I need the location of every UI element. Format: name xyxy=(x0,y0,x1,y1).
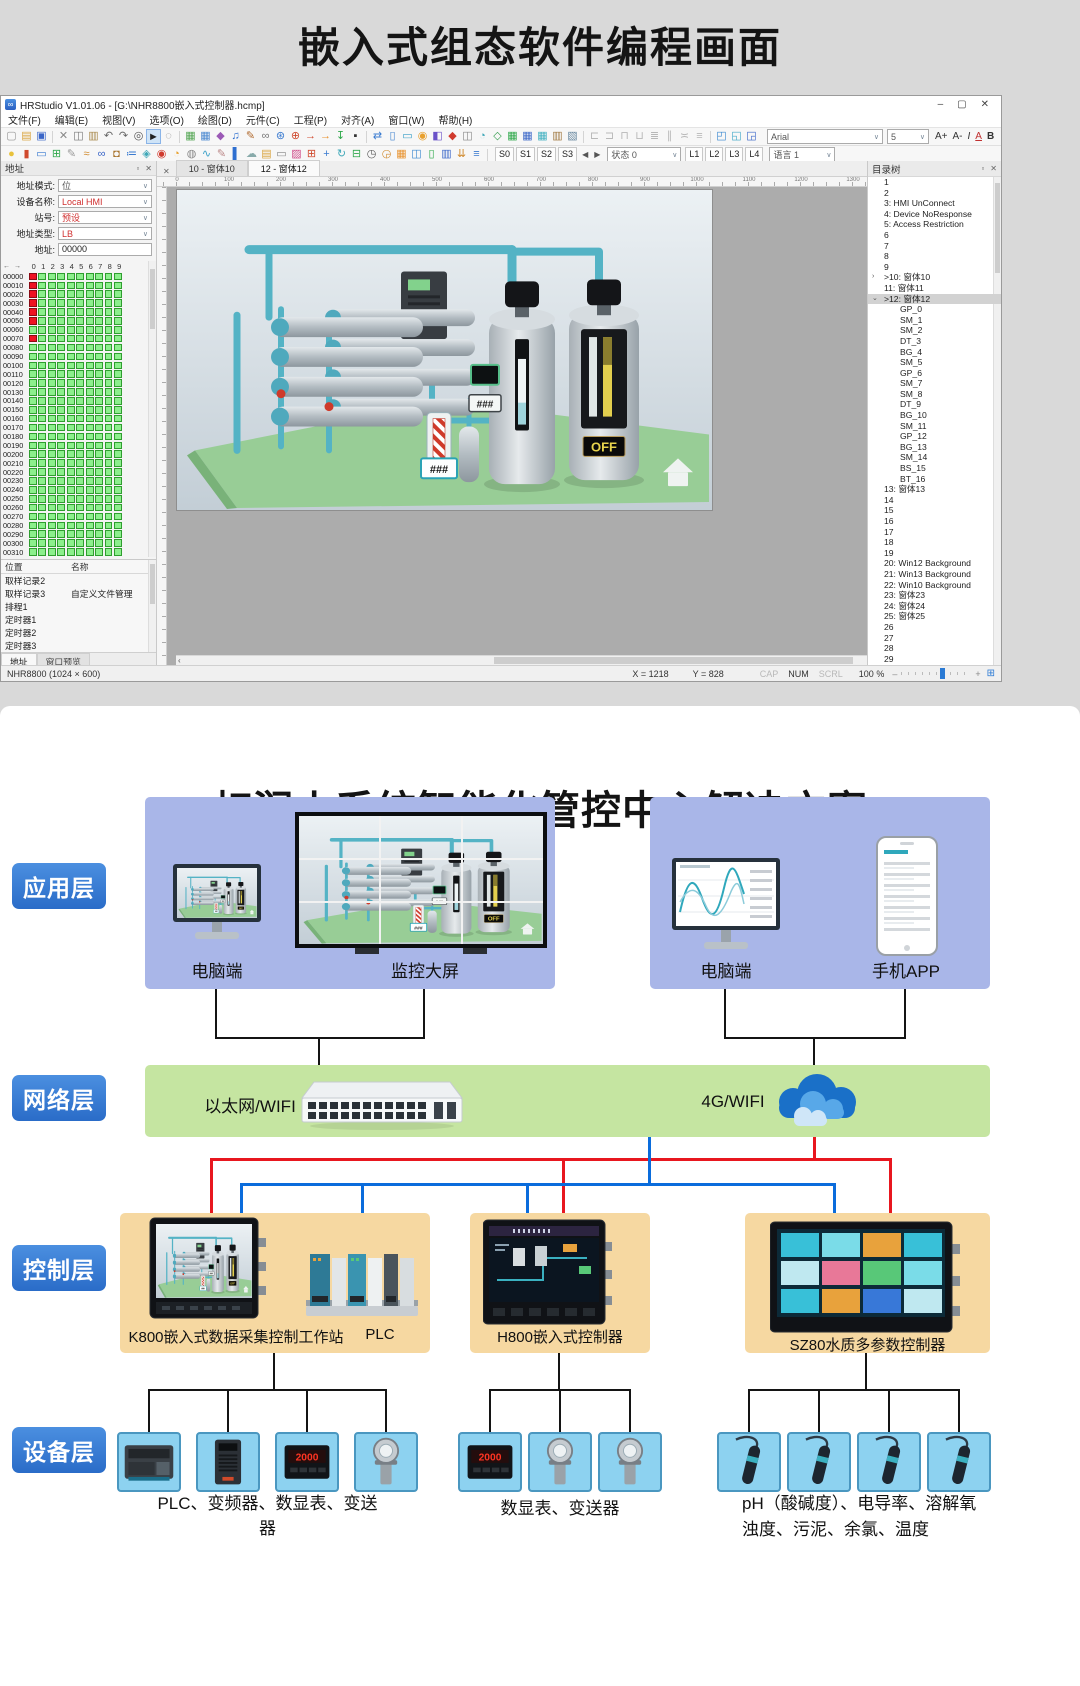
bit-cell[interactable] xyxy=(105,450,113,458)
bit-cell[interactable] xyxy=(95,370,103,378)
dl-icon[interactable]: ↧ xyxy=(333,129,348,144)
bit-cell[interactable] xyxy=(105,495,113,503)
bit-cell[interactable] xyxy=(67,353,75,361)
tree-item[interactable]: BG_4 xyxy=(868,347,1001,358)
bit-cell[interactable] xyxy=(29,513,37,521)
bit-cell[interactable] xyxy=(95,282,103,290)
state-button-S2[interactable]: S2 xyxy=(537,147,556,162)
bit-cell[interactable] xyxy=(67,317,75,325)
bit-cell[interactable] xyxy=(29,539,37,547)
bit-cell[interactable] xyxy=(67,273,75,281)
pen-icon[interactable]: ✎ xyxy=(243,129,258,144)
bit-cell[interactable] xyxy=(48,477,56,485)
bit-cell[interactable] xyxy=(29,530,37,538)
bit-cell[interactable] xyxy=(114,308,122,316)
bit-cell[interactable] xyxy=(105,530,113,538)
bit-cell[interactable] xyxy=(57,477,65,485)
bit-cell[interactable] xyxy=(38,415,46,423)
bit-cell[interactable] xyxy=(48,468,56,476)
bit-cell[interactable] xyxy=(76,326,84,334)
bit-cell[interactable] xyxy=(114,406,122,414)
bit-cell[interactable] xyxy=(38,353,46,361)
bit-cell[interactable] xyxy=(57,468,65,476)
bit-cell[interactable] xyxy=(95,353,103,361)
bit-cell[interactable] xyxy=(57,513,65,521)
menu-item-8[interactable]: 窗口(W) xyxy=(381,112,431,127)
bit-cell[interactable] xyxy=(114,317,122,325)
bit-cell[interactable] xyxy=(57,362,65,370)
bit-cell[interactable] xyxy=(29,290,37,298)
bit-cell[interactable] xyxy=(38,459,46,467)
bit-cell[interactable] xyxy=(48,415,56,423)
tree-item[interactable]: BT_16 xyxy=(868,474,1001,485)
scr-icon[interactable]: ▭ xyxy=(400,129,415,144)
bit-cell[interactable] xyxy=(38,450,46,458)
bit-cell[interactable] xyxy=(105,353,113,361)
bit-cell[interactable] xyxy=(114,424,122,432)
bit-cell[interactable] xyxy=(86,335,94,343)
mov-icon[interactable]: + xyxy=(319,147,334,162)
bit-cell[interactable] xyxy=(86,326,94,334)
win3-icon[interactable]: ◲ xyxy=(744,129,759,144)
bit-cell[interactable] xyxy=(114,486,122,494)
bit-cell[interactable] xyxy=(29,495,37,503)
bit-cell[interactable] xyxy=(86,344,94,352)
bit-cell[interactable] xyxy=(114,282,122,290)
bit-cell[interactable] xyxy=(76,397,84,405)
tree-item[interactable]: ›>10: 窗体10 xyxy=(868,272,1001,283)
blb-icon[interactable]: ● xyxy=(4,147,19,162)
bit-cell[interactable] xyxy=(38,282,46,290)
bit-cell[interactable] xyxy=(48,299,56,307)
tag-icon[interactable]: ◔ xyxy=(475,129,490,144)
bit-cell[interactable] xyxy=(67,415,75,423)
img-icon[interactable]: ▦ xyxy=(183,129,198,144)
doc-icon[interactable]: ▯ xyxy=(385,129,400,144)
bit-cell[interactable] xyxy=(38,504,46,512)
tree-item[interactable]: SM_5 xyxy=(868,357,1001,368)
bit-cell[interactable] xyxy=(57,424,65,432)
list-item[interactable]: 取样记录3自定义文件管理 xyxy=(1,587,156,600)
bit-cell[interactable] xyxy=(105,282,113,290)
bit-cell[interactable] xyxy=(48,450,56,458)
bit-cell[interactable] xyxy=(67,308,75,316)
rfr-icon[interactable]: ↻ xyxy=(334,147,349,162)
imp-icon[interactable]: ⇊ xyxy=(454,147,469,162)
nod-icon[interactable]: ◇ xyxy=(490,129,505,144)
tree-item[interactable]: GP_12 xyxy=(868,431,1001,442)
bit-cell[interactable] xyxy=(76,335,84,343)
bit-cell[interactable] xyxy=(29,450,37,458)
bit-cell[interactable] xyxy=(114,513,122,521)
bit-cell[interactable] xyxy=(95,362,103,370)
bit-cell[interactable] xyxy=(105,317,113,325)
font-family-combo[interactable]: Arial∨ xyxy=(767,129,883,144)
bit-cell[interactable] xyxy=(29,442,37,450)
bit-cell[interactable] xyxy=(86,282,94,290)
menu-item-1[interactable]: 编辑(E) xyxy=(48,112,95,127)
bit-cell[interactable] xyxy=(38,326,46,334)
st-icon[interactable]: ▧ xyxy=(565,129,580,144)
bit-cell[interactable] xyxy=(95,539,103,547)
bit-cell[interactable] xyxy=(86,317,94,325)
bit-cell[interactable] xyxy=(86,379,94,387)
bit-cell[interactable] xyxy=(114,335,122,343)
ps2-icon[interactable]: ▥ xyxy=(550,129,565,144)
save-icon[interactable]: ▣ xyxy=(34,129,49,144)
tg2-icon[interactable]: ◈ xyxy=(139,147,154,162)
bok-icon[interactable]: ▥ xyxy=(439,147,454,162)
bit-cell[interactable] xyxy=(95,450,103,458)
bit-cell[interactable] xyxy=(29,388,37,396)
tree-item[interactable]: 15 xyxy=(868,505,1001,516)
bit-cell[interactable] xyxy=(48,442,56,450)
bit-cell[interactable] xyxy=(67,362,75,370)
bit-cell[interactable] xyxy=(95,530,103,538)
list-item[interactable]: 定时器1 xyxy=(1,613,156,626)
tree-item[interactable]: 17 xyxy=(868,527,1001,538)
bit-cell[interactable] xyxy=(67,290,75,298)
bit-cell[interactable] xyxy=(48,459,56,467)
bit-cell[interactable] xyxy=(38,513,46,521)
bit-cell[interactable] xyxy=(86,308,94,316)
close-icon[interactable]: ✕ xyxy=(145,164,152,173)
bit-cell[interactable] xyxy=(57,504,65,512)
field-combo-3[interactable]: LB∨ xyxy=(58,227,152,240)
bit-cell[interactable] xyxy=(38,442,46,450)
list-item[interactable]: 定时器2 xyxy=(1,626,156,639)
gb-icon[interactable]: ▦ xyxy=(520,129,535,144)
tree-item[interactable]: GP_0 xyxy=(868,304,1001,315)
bit-cell[interactable] xyxy=(76,486,84,494)
tree-item[interactable]: 28 xyxy=(868,643,1001,654)
bit-cell[interactable] xyxy=(67,513,75,521)
sync-icon[interactable]: ⇄ xyxy=(370,129,385,144)
mus-icon[interactable]: ♫ xyxy=(228,129,243,144)
redo-icon[interactable]: ↷ xyxy=(116,129,131,144)
bit-cell[interactable] xyxy=(76,415,84,423)
bit-cell[interactable] xyxy=(105,486,113,494)
bit-cell[interactable] xyxy=(67,335,75,343)
mon-icon[interactable]: ▭ xyxy=(34,147,49,162)
lst-icon[interactable]: ≔ xyxy=(124,147,139,162)
design-canvas[interactable]: ### xyxy=(167,187,867,666)
bit-cell[interactable] xyxy=(105,362,113,370)
al8-icon[interactable]: ≡ xyxy=(692,129,707,144)
bit-cell[interactable] xyxy=(105,299,113,307)
float-icon[interactable]: ▫ xyxy=(981,164,984,173)
bit-cell[interactable] xyxy=(29,273,37,281)
bit-cell[interactable] xyxy=(38,433,46,441)
bit-cell[interactable] xyxy=(86,442,94,450)
bit-cell[interactable] xyxy=(95,415,103,423)
bit-cell[interactable] xyxy=(48,433,56,441)
bit-cell[interactable] xyxy=(95,299,103,307)
state-combo[interactable]: 状态 0∨ xyxy=(607,147,681,162)
bit-cell[interactable] xyxy=(67,299,75,307)
al1-icon[interactable]: ⊏ xyxy=(587,129,602,144)
bit-cell[interactable] xyxy=(48,379,56,387)
bit-cell[interactable] xyxy=(86,504,94,512)
bit-cell[interactable] xyxy=(105,513,113,521)
bit-cell[interactable] xyxy=(76,370,84,378)
bit-cell[interactable] xyxy=(67,548,75,556)
zoom-in-button[interactable]: + xyxy=(975,669,980,679)
bit-cell[interactable] xyxy=(57,344,65,352)
language-combo[interactable]: 语言 1∨ xyxy=(769,147,835,162)
maximize-icon[interactable]: ▢ xyxy=(957,99,966,110)
ch2-icon[interactable]: ∞ xyxy=(94,147,109,162)
bit-cell[interactable] xyxy=(95,433,103,441)
menu-item-7[interactable]: 对齐(A) xyxy=(334,112,381,127)
bit-cell[interactable] xyxy=(76,290,84,298)
tree-item[interactable]: SM_14 xyxy=(868,452,1001,463)
alm-icon[interactable]: ◉ xyxy=(154,147,169,162)
bit-cell[interactable] xyxy=(57,379,65,387)
layout-icon[interactable]: ⊞ xyxy=(987,668,995,679)
font-button-B[interactable]: B xyxy=(987,131,994,142)
bit-cell[interactable] xyxy=(48,548,56,556)
font-button-A[interactable]: A xyxy=(975,131,982,142)
tgt-icon[interactable]: ◉ xyxy=(415,129,430,144)
lck-icon[interactable]: ◘ xyxy=(109,147,124,162)
bit-cell[interactable] xyxy=(29,504,37,512)
state-arrow-icon[interactable]: ▶ xyxy=(594,150,600,159)
bit-cell[interactable] xyxy=(29,353,37,361)
tree-item[interactable]: SM_1 xyxy=(868,315,1001,326)
bel-icon[interactable]: ◆ xyxy=(445,129,460,144)
tree-item[interactable]: 9 xyxy=(868,262,1001,273)
bit-cell[interactable] xyxy=(86,477,94,485)
bit-cell[interactable] xyxy=(48,406,56,414)
bit-cell[interactable] xyxy=(95,326,103,334)
pe2-icon[interactable]: ✎ xyxy=(64,147,79,162)
tree-item[interactable]: GP_6 xyxy=(868,368,1001,379)
bit-cell[interactable] xyxy=(76,477,84,485)
tree-item[interactable]: 11: 窗体11 xyxy=(868,283,1001,294)
bit-cell[interactable] xyxy=(105,522,113,530)
bit-cell[interactable] xyxy=(76,495,84,503)
tree-item[interactable]: SM_7 xyxy=(868,378,1001,389)
undo-icon[interactable]: ↶ xyxy=(101,129,116,144)
list-item[interactable]: 定时器3 xyxy=(1,639,156,652)
bit-cell[interactable] xyxy=(38,273,46,281)
bit-cell[interactable] xyxy=(114,353,122,361)
gear-icon[interactable]: ⊛ xyxy=(273,129,288,144)
bit-cell[interactable] xyxy=(76,504,84,512)
bit-cell[interactable] xyxy=(86,388,94,396)
bit-cell[interactable] xyxy=(95,486,103,494)
bit-cell[interactable] xyxy=(105,326,113,334)
ar1-icon[interactable]: → xyxy=(303,129,318,144)
al4-icon[interactable]: ⊔ xyxy=(632,129,647,144)
tree-item[interactable]: SM_11 xyxy=(868,421,1001,432)
open-icon[interactable]: ▤ xyxy=(19,129,34,144)
bit-cell[interactable] xyxy=(29,308,37,316)
bit-cell[interactable] xyxy=(105,477,113,485)
bit-cell[interactable] xyxy=(76,406,84,414)
font-button-I[interactable]: I xyxy=(968,131,971,142)
hmi-screen-design[interactable]: ### xyxy=(177,190,712,510)
bit-cell[interactable] xyxy=(86,353,94,361)
tree-item[interactable]: 1 xyxy=(868,177,1001,188)
bit-cell[interactable] xyxy=(38,548,46,556)
tree-item[interactable]: BS_15 xyxy=(868,463,1001,474)
bit-cell[interactable] xyxy=(38,379,46,387)
bit-cell[interactable] xyxy=(86,513,94,521)
bit-cell[interactable] xyxy=(86,290,94,298)
zoom-slider[interactable] xyxy=(901,672,971,675)
bit-cell[interactable] xyxy=(95,442,103,450)
bit-cell[interactable] xyxy=(29,406,37,414)
clk-icon[interactable]: ◶ xyxy=(379,147,394,162)
bit-cell[interactable] xyxy=(105,424,113,432)
copy-icon[interactable]: ◫ xyxy=(71,129,86,144)
bit-cell[interactable] xyxy=(114,397,122,405)
tree-item[interactable]: 8 xyxy=(868,251,1001,262)
field-combo-0[interactable]: 位∨ xyxy=(58,179,152,192)
bit-cell[interactable] xyxy=(67,424,75,432)
bit-cell[interactable] xyxy=(95,317,103,325)
bit-cell[interactable] xyxy=(67,388,75,396)
lang-button-L2[interactable]: L2 xyxy=(705,147,723,162)
tree-item[interactable]: 5: Access Restriction xyxy=(868,219,1001,230)
bit-cell[interactable] xyxy=(38,522,46,530)
bit-cell[interactable] xyxy=(114,379,122,387)
dev-icon[interactable]: ▪ xyxy=(348,129,363,144)
tree-item[interactable]: 6 xyxy=(868,230,1001,241)
bit-cell[interactable] xyxy=(29,370,37,378)
new-icon[interactable]: ▢ xyxy=(4,129,19,144)
bit-cell[interactable] xyxy=(105,379,113,387)
grid-scrollbar[interactable] xyxy=(148,261,156,557)
list-item[interactable]: 取样记录2 xyxy=(1,574,156,587)
bit-cell[interactable] xyxy=(86,539,94,547)
bit-cell[interactable] xyxy=(86,415,94,423)
bit-cell[interactable] xyxy=(29,282,37,290)
menu-item-4[interactable]: 绘图(D) xyxy=(191,112,239,127)
bit-cell[interactable] xyxy=(29,415,37,423)
bit-cell[interactable] xyxy=(76,530,84,538)
bit-cell[interactable] xyxy=(105,273,113,281)
bit-cell[interactable] xyxy=(76,308,84,316)
tree-item[interactable]: 7 xyxy=(868,241,1001,252)
bit-cell[interactable] xyxy=(38,539,46,547)
bit-cell[interactable] xyxy=(95,522,103,530)
bit-cell[interactable] xyxy=(105,344,113,352)
tree-item[interactable]: 14 xyxy=(868,495,1001,506)
bit-cell[interactable] xyxy=(48,317,56,325)
menu-item-2[interactable]: 视图(V) xyxy=(95,112,142,127)
menu-item-3[interactable]: 选项(O) xyxy=(142,112,190,127)
al3-icon[interactable]: ⊓ xyxy=(617,129,632,144)
bit-cell[interactable] xyxy=(57,290,65,298)
bit-cell[interactable] xyxy=(38,370,46,378)
bit-cell[interactable] xyxy=(57,539,65,547)
tree-item[interactable]: 3: HMI UnConnect xyxy=(868,198,1001,209)
lk2-icon[interactable]: ≈ xyxy=(79,147,94,162)
bit-cell[interactable] xyxy=(57,299,65,307)
bit-cell[interactable] xyxy=(29,433,37,441)
bit-cell[interactable] xyxy=(114,290,122,298)
bit-cell[interactable] xyxy=(86,486,94,494)
bit-cell[interactable] xyxy=(114,504,122,512)
bit-cell[interactable] xyxy=(57,282,65,290)
tree-item[interactable]: DT_9 xyxy=(868,399,1001,410)
bit-cell[interactable] xyxy=(95,379,103,387)
bit-cell[interactable] xyxy=(86,273,94,281)
bit-cell[interactable] xyxy=(67,326,75,334)
bit-cell[interactable] xyxy=(38,530,46,538)
bit-cell[interactable] xyxy=(67,450,75,458)
bit-cell[interactable] xyxy=(95,335,103,343)
state-button-S0[interactable]: S0 xyxy=(495,147,514,162)
bit-cell[interactable] xyxy=(57,459,65,467)
bit-cell[interactable] xyxy=(48,504,56,512)
tree-item[interactable]: 21: Win13 Background xyxy=(868,569,1001,580)
tree-item[interactable]: DT_3 xyxy=(868,336,1001,347)
find-icon[interactable]: ◎ xyxy=(131,129,146,144)
bit-cell[interactable] xyxy=(57,450,65,458)
bit-cell[interactable] xyxy=(86,424,94,432)
bit-cell[interactable] xyxy=(86,299,94,307)
bit-cell[interactable] xyxy=(95,513,103,521)
tree-item[interactable]: 25: 窗体25 xyxy=(868,611,1001,622)
bit-cell[interactable] xyxy=(67,495,75,503)
bit-cell[interactable] xyxy=(76,442,84,450)
close-icon[interactable]: ✕ xyxy=(981,99,989,110)
bit-cell[interactable] xyxy=(48,486,56,494)
bit-cell[interactable] xyxy=(57,326,65,334)
bit-cell[interactable] xyxy=(114,370,122,378)
bit-cell[interactable] xyxy=(86,450,94,458)
bit-cell[interactable] xyxy=(57,370,65,378)
close-icon[interactable]: ✕ xyxy=(990,164,997,173)
state-arrow-icon[interactable]: ◀ xyxy=(582,150,588,159)
tree-item[interactable]: ⌄>12: 窗体12 xyxy=(868,294,1001,305)
bit-cell[interactable] xyxy=(105,388,113,396)
bit-cell[interactable] xyxy=(114,530,122,538)
bit-cell[interactable] xyxy=(95,344,103,352)
paste-icon[interactable]: ▥ xyxy=(86,129,101,144)
tree-item[interactable]: 29 xyxy=(868,654,1001,665)
document-tab-1[interactable]: 12 - 窗体12 xyxy=(248,160,320,176)
gc-icon[interactable]: ▦ xyxy=(535,129,550,144)
bit-cell[interactable] xyxy=(67,477,75,485)
bit-cell[interactable] xyxy=(67,522,75,530)
bit-cell[interactable] xyxy=(67,486,75,494)
bat-icon[interactable]: ▮ xyxy=(19,147,34,162)
bit-cell[interactable] xyxy=(57,273,65,281)
gg-icon[interactable]: ▦ xyxy=(505,129,520,144)
tree-item[interactable]: 13: 窗体13 xyxy=(868,484,1001,495)
bit-cell[interactable] xyxy=(67,442,75,450)
tree-item[interactable]: 4: Device NoResponse xyxy=(868,209,1001,220)
field-combo-2[interactable]: 预设∨ xyxy=(58,211,152,224)
bit-cell[interactable] xyxy=(105,370,113,378)
bit-cell[interactable] xyxy=(38,388,46,396)
state-button-S3[interactable]: S3 xyxy=(558,147,577,162)
bit-cell[interactable] xyxy=(76,317,84,325)
tree-item[interactable]: 22: Win10 Background xyxy=(868,580,1001,591)
bit-cell[interactable] xyxy=(105,406,113,414)
bit-cell[interactable] xyxy=(76,282,84,290)
bit-cell[interactable] xyxy=(105,290,113,298)
bit-cell[interactable] xyxy=(67,468,75,476)
font-button-A-[interactable]: A- xyxy=(953,131,963,142)
bit-cell[interactable] xyxy=(105,548,113,556)
lang-button-L4[interactable]: L4 xyxy=(745,147,763,162)
